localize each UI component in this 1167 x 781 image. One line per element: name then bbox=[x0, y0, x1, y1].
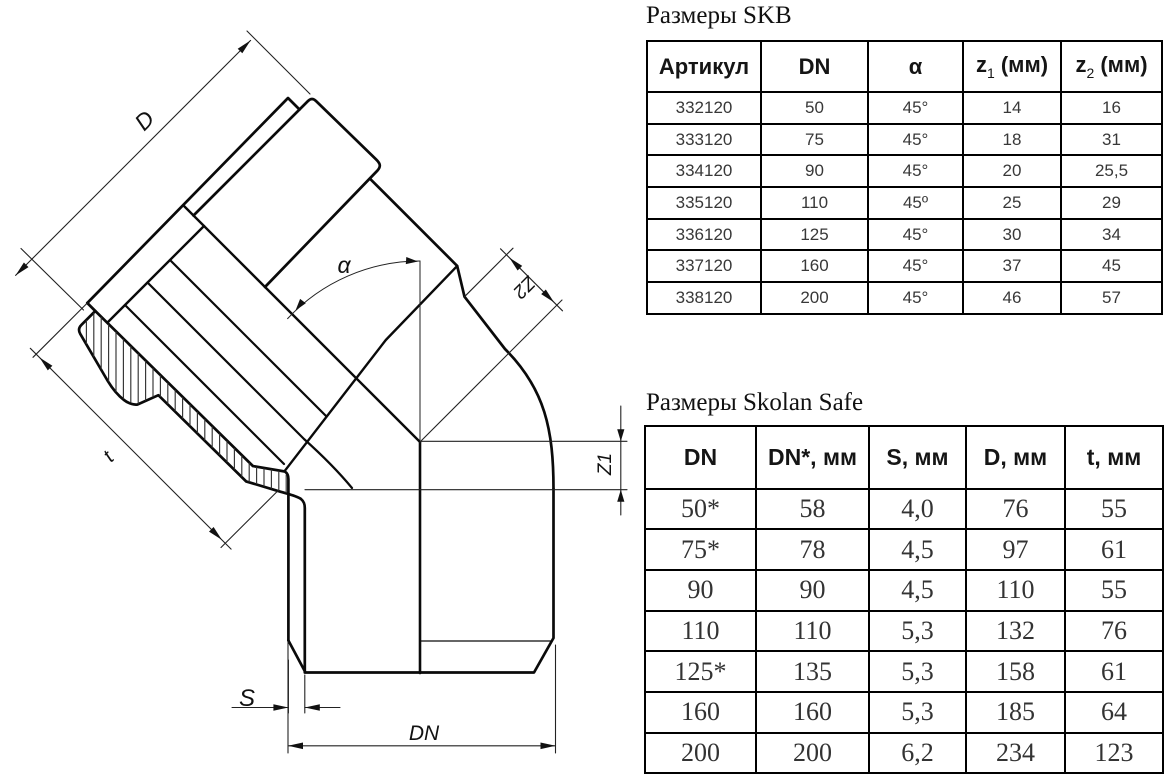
svg-text:α: α bbox=[337, 252, 351, 278]
svg-text:Z2: Z2 bbox=[508, 271, 540, 303]
svg-text:t: t bbox=[99, 446, 120, 467]
svg-text:S: S bbox=[239, 685, 255, 712]
svg-text:Z1: Z1 bbox=[595, 453, 616, 476]
svg-text:DN: DN bbox=[409, 722, 440, 745]
svg-text:D: D bbox=[129, 105, 159, 135]
